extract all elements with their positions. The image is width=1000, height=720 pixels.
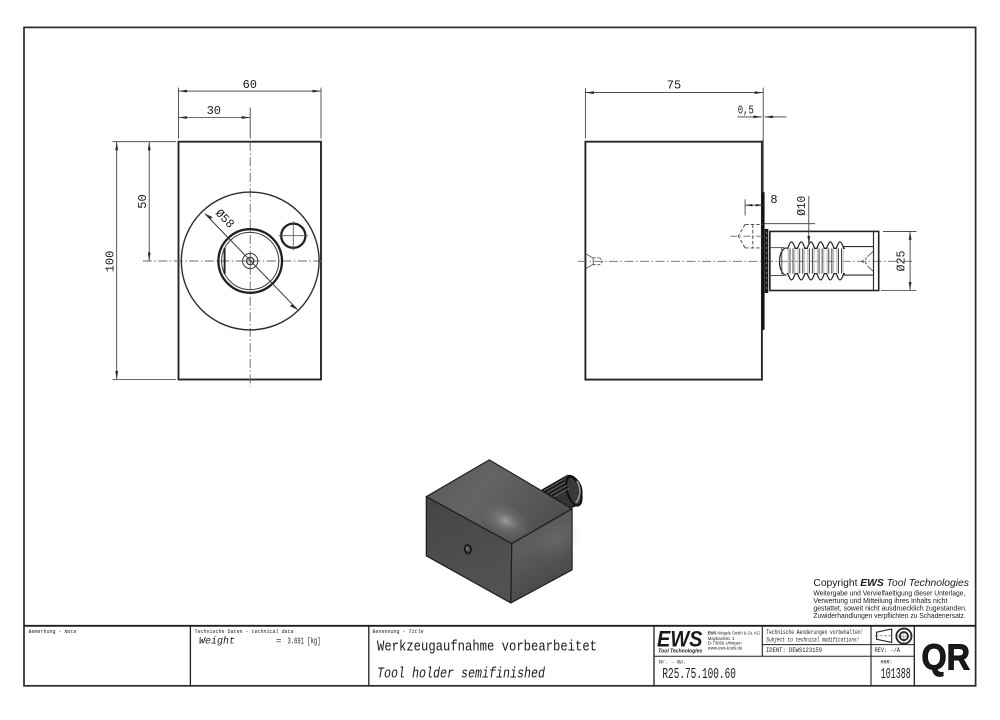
svg-text:Technische Daten - technical d: Technische Daten - technical data xyxy=(195,629,294,635)
svg-text:IDENT: DEWS123159: IDENT: DEWS123159 xyxy=(766,647,822,654)
svg-text:Bemerkung - Note: Bemerkung - Note xyxy=(29,629,77,635)
svg-text:Ø10: Ø10 xyxy=(795,196,809,216)
svg-text:8: 8 xyxy=(770,193,777,207)
svg-text:75: 75 xyxy=(667,79,681,93)
svg-text:101388: 101388 xyxy=(881,666,911,683)
svg-text:Copyright EWS Tool Technologie: Copyright EWS Tool Technologies xyxy=(813,578,969,589)
svg-text:Weight: Weight xyxy=(199,636,235,648)
svg-text:QR: QR xyxy=(922,637,971,678)
svg-text:www.ews-tools.de: www.ews-tools.de xyxy=(708,645,743,650)
svg-text:=: = xyxy=(276,637,281,647)
svg-text:Ø25: Ø25 xyxy=(894,251,908,272)
svg-text:R25.75.100.60: R25.75.100.60 xyxy=(662,666,736,683)
svg-text:Werkzeugaufnahme vorbearbeitet: Werkzeugaufnahme vorbearbeitet xyxy=(377,639,597,655)
svg-text:HNR:: HNR: xyxy=(881,660,893,666)
svg-text:Technische Aenderungen vorbeha: Technische Aenderungen vorbehalten! xyxy=(766,629,863,636)
svg-text:Subject to technical modificat: Subject to technical modifications! xyxy=(766,637,859,644)
svg-text:50: 50 xyxy=(136,194,150,208)
svg-text:Tool holder semifinished: Tool holder semifinished xyxy=(377,667,545,683)
svg-text:Zuwiderhandlungen verpflichten: Zuwiderhandlungen verpflichten zu Schade… xyxy=(813,611,966,620)
svg-text:Benennung - Title: Benennung - Title xyxy=(373,629,424,635)
svg-text:100: 100 xyxy=(104,251,118,273)
svg-text:EWS Weigele GmbH & Co. KG: EWS Weigele GmbH & Co. KG xyxy=(708,630,761,635)
svg-text:0,5: 0,5 xyxy=(738,103,754,117)
svg-text:Nr. - No.: Nr. - No. xyxy=(659,660,686,666)
svg-text:30: 30 xyxy=(207,104,221,118)
svg-text:60: 60 xyxy=(243,78,257,92)
svg-text:Ø58: Ø58 xyxy=(212,207,237,232)
svg-text:3.691 [kg]: 3.691 [kg] xyxy=(288,637,321,647)
svg-text:REV: -/A: REV: -/A xyxy=(875,647,901,654)
svg-text:Tool Technologies: Tool Technologies xyxy=(658,649,702,655)
